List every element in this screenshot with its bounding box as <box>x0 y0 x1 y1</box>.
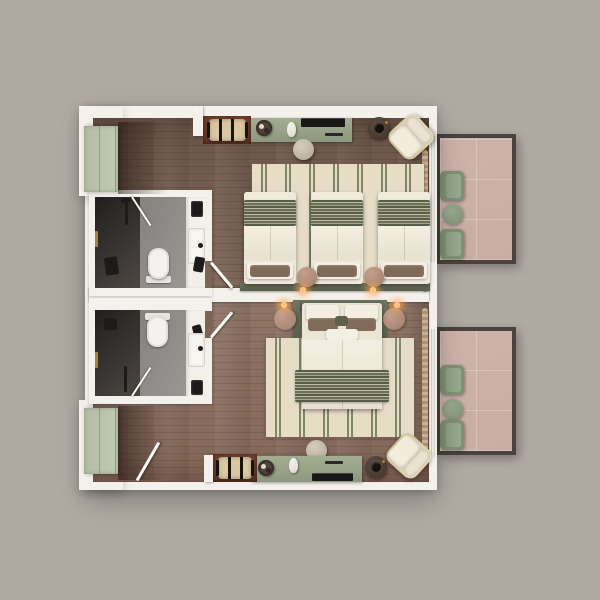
balcony-armchair <box>440 171 464 201</box>
kettle <box>287 122 296 137</box>
balcony-armchair <box>440 365 464 395</box>
bedside-lamp <box>281 302 287 308</box>
bed-duvet <box>311 226 363 260</box>
balcony-armchair <box>440 420 464 450</box>
wall-lamp <box>370 287 376 293</box>
luggage-rack <box>209 119 246 141</box>
shower-stool <box>104 256 119 276</box>
bedside-pouf <box>297 267 317 287</box>
luggage-rack <box>218 457 252 479</box>
wall-lamp <box>300 287 306 293</box>
towel-rail <box>95 352 98 368</box>
toilet <box>147 316 168 347</box>
single-bed-1 <box>244 192 296 284</box>
bathroom-lower <box>89 298 212 404</box>
wall-stub-lower <box>204 455 213 482</box>
pillow-accent <box>250 265 290 277</box>
bedside-pouf <box>364 267 384 287</box>
bed-throw <box>311 200 363 226</box>
shower-head <box>121 198 130 203</box>
single-bed-3 <box>378 192 430 284</box>
bed-throw <box>378 200 430 226</box>
shower-column <box>124 366 127 392</box>
towel-rail <box>95 231 98 247</box>
faucet <box>198 243 203 248</box>
balcony-armchair <box>440 229 464 259</box>
balcony-lower <box>436 327 516 455</box>
wardrobe-upper <box>84 126 118 192</box>
window-lower <box>429 329 437 457</box>
round-side-table <box>365 456 387 478</box>
bedside-table <box>274 308 296 330</box>
luggage-panel <box>203 116 251 144</box>
balcony-round-table <box>442 204 463 225</box>
remote-tray <box>325 133 343 136</box>
kettle <box>289 458 298 473</box>
wardrobe-lower <box>84 408 118 474</box>
shower-floor <box>95 310 140 396</box>
mirror-cabinet <box>191 380 203 395</box>
tv-lower <box>312 473 353 481</box>
lumbar-pillow <box>326 329 358 340</box>
balcony-upper <box>436 134 516 264</box>
pillow-accent <box>317 265 357 277</box>
round-side-table <box>368 117 390 139</box>
toilet <box>148 248 169 279</box>
bed-duvet <box>378 226 430 260</box>
bedside-table <box>383 308 405 330</box>
floor-plan-canvas <box>0 0 600 600</box>
wall-stub-upper <box>193 106 203 136</box>
remote-tray <box>325 461 343 464</box>
bedside-lamp <box>394 302 400 308</box>
mirror-cabinet <box>191 201 203 217</box>
bathroom-upper <box>89 190 212 296</box>
pillow-olive <box>335 316 348 326</box>
single-bed-2 <box>311 192 363 284</box>
balcony-round-table <box>442 399 463 420</box>
coffee-tray <box>256 120 272 136</box>
bed-throw <box>295 370 389 402</box>
tv-upper <box>301 118 345 127</box>
coffee-tray <box>258 460 274 476</box>
curtain-lower <box>422 308 428 452</box>
desk-stool <box>293 139 314 160</box>
bed-duvet <box>244 226 296 260</box>
shower-head <box>104 318 117 330</box>
bed-throw <box>244 200 296 226</box>
pillow-accent <box>384 265 424 277</box>
headboard-panel-upper <box>240 283 430 291</box>
faucet <box>198 346 203 351</box>
window-upper <box>429 136 437 262</box>
luggage-panel <box>213 454 257 482</box>
shower-floor <box>95 197 140 288</box>
